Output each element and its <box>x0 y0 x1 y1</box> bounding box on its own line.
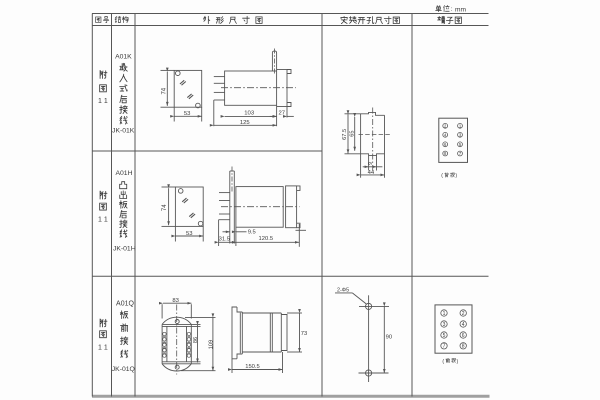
svg-text:mm: mm <box>455 6 466 13</box>
svg-text:103: 103 <box>244 111 255 117</box>
svg-text:109: 109 <box>208 340 214 349</box>
svg-text:A01K: A01K <box>115 54 132 61</box>
svg-text:A01H: A01H <box>115 170 132 177</box>
svg-text:A01Q: A01Q <box>116 301 134 308</box>
svg-text:1 1: 1 1 <box>98 98 108 105</box>
svg-text:2: 2 <box>462 311 465 317</box>
svg-text:JK-01K: JK-01K <box>112 128 135 135</box>
svg-text:1 1: 1 1 <box>98 345 108 352</box>
svg-text:JK-01Q: JK-01Q <box>112 366 135 373</box>
svg-text:53: 53 <box>184 111 191 117</box>
svg-text:120.5: 120.5 <box>259 236 274 242</box>
svg-text:74: 74 <box>162 87 168 94</box>
svg-text:(: ( <box>441 173 443 179</box>
svg-text:1: 1 <box>443 311 446 317</box>
svg-text:90: 90 <box>386 334 392 340</box>
svg-text:5: 5 <box>443 333 446 339</box>
svg-text:73: 73 <box>301 331 307 337</box>
svg-text::: : <box>451 6 453 13</box>
svg-text:9.5: 9.5 <box>248 230 256 236</box>
svg-text:150.5: 150.5 <box>245 364 260 370</box>
svg-text:(: ( <box>442 359 444 365</box>
svg-text:3: 3 <box>443 322 446 328</box>
svg-text:): ) <box>455 173 457 179</box>
svg-text:8: 8 <box>462 344 465 350</box>
svg-text:9: 9 <box>368 162 374 165</box>
svg-text:31.5: 31.5 <box>219 237 230 243</box>
svg-text:125: 125 <box>240 120 251 126</box>
svg-text:1 1: 1 1 <box>98 217 108 224</box>
svg-text:): ) <box>457 359 459 365</box>
svg-text:53: 53 <box>186 231 193 237</box>
svg-text:27: 27 <box>279 111 286 117</box>
svg-text:44: 44 <box>368 170 375 176</box>
svg-text:65: 65 <box>349 130 355 136</box>
svg-text:JK-01H: JK-01H <box>113 246 136 253</box>
svg-text:4: 4 <box>462 322 465 328</box>
svg-text:7: 7 <box>443 344 446 350</box>
svg-text:74: 74 <box>162 204 168 211</box>
svg-text:83: 83 <box>172 298 179 304</box>
svg-text:67.5: 67.5 <box>342 129 348 140</box>
svg-text:6: 6 <box>462 333 465 339</box>
svg-text:86: 86 <box>193 337 199 343</box>
